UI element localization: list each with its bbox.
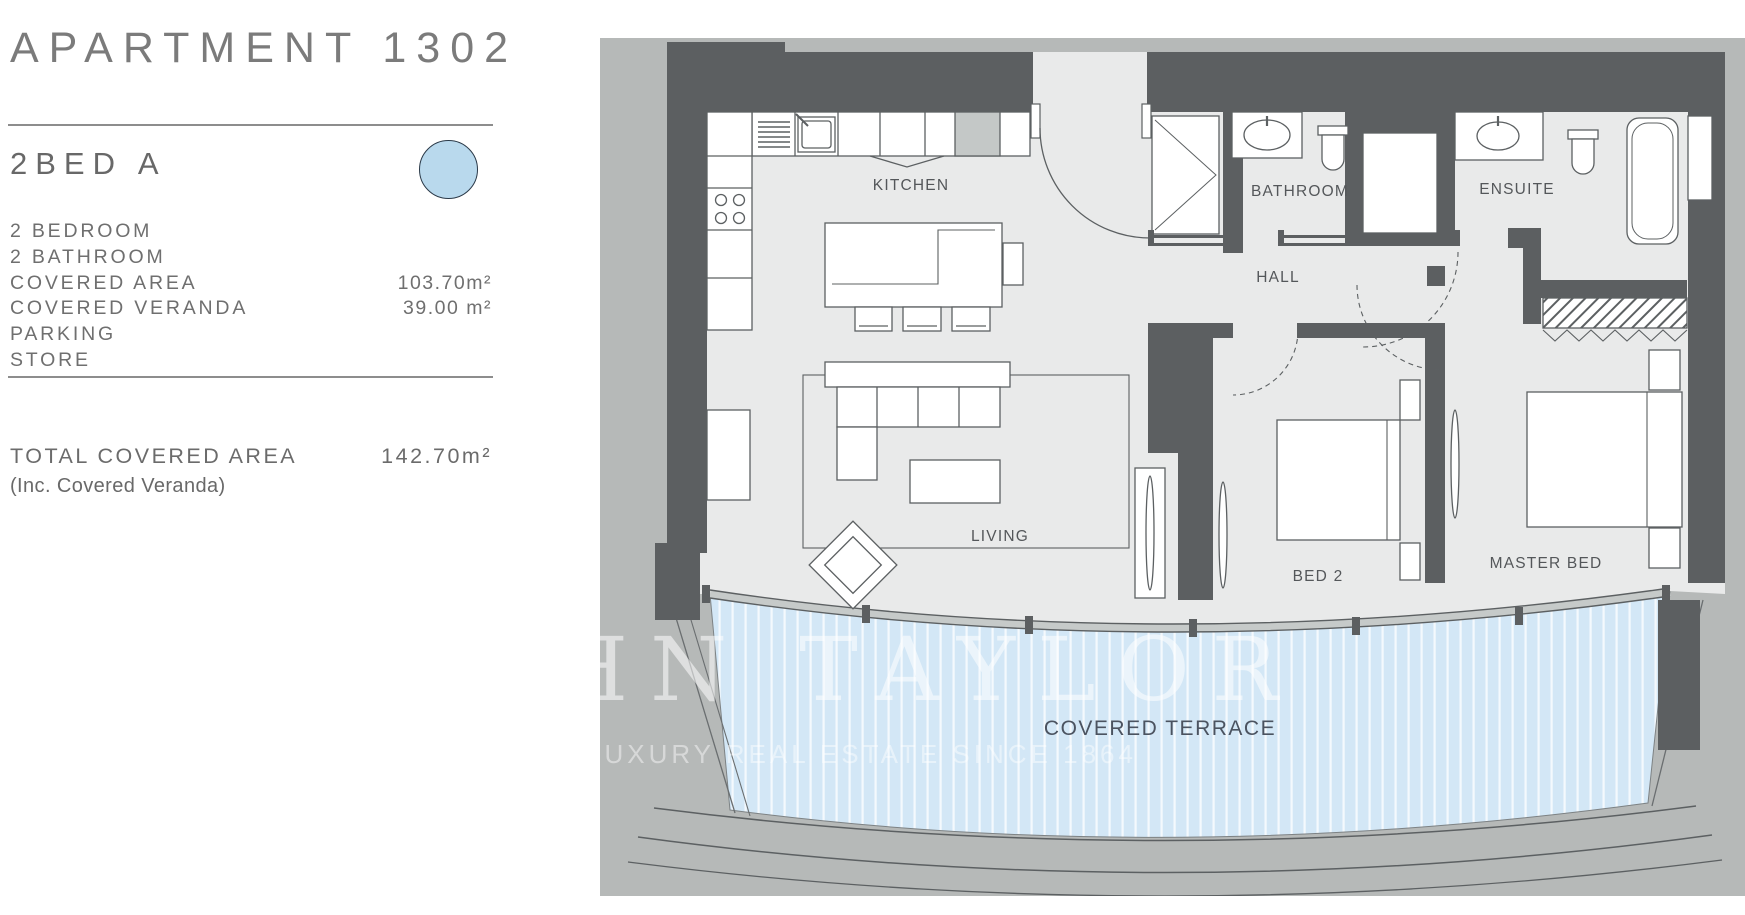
toilet-bowl [1572, 139, 1594, 174]
wall-top-right [1147, 52, 1725, 112]
toilet-tank [1318, 126, 1348, 135]
spec-label: COVERED VERANDA [10, 297, 248, 320]
unit-legend-dot [419, 140, 478, 199]
info-panel: APARTMENT 1302 2BED A 2 BEDROOM 2 BATHRO… [0, 0, 570, 915]
nightstand [1649, 528, 1680, 568]
door-jamb [1031, 104, 1040, 138]
floorplan-drawing: KITCHEN BATHROOM ENSUITE HALL LIVING BED… [570, 38, 1745, 896]
spec-row: STORE [10, 349, 492, 375]
spec-label: 2 BEDROOM [10, 220, 152, 243]
nightstand [1649, 350, 1680, 390]
divider-bottom [8, 376, 493, 378]
tv-cabinet [707, 410, 750, 500]
spec-row: PARKING [10, 323, 492, 349]
wardrobe-hatch [1543, 298, 1687, 328]
window [1688, 116, 1712, 200]
wall [667, 42, 785, 52]
kitchen-appliance [955, 112, 1000, 156]
spec-row: 2 BATHROOM [10, 246, 492, 272]
island-stools [855, 307, 990, 331]
wall-left [667, 112, 707, 553]
spec-value: 103.70m² [398, 272, 492, 295]
spec-row: COVERED VERANDA 39.00 m² [10, 297, 492, 323]
spec-label: PARKING [10, 323, 116, 346]
label-bed2: BED 2 [1293, 568, 1344, 585]
label-living: LIVING [971, 528, 1029, 545]
wall [1523, 228, 1541, 324]
wall-left-stub [655, 543, 700, 620]
wall [1213, 323, 1233, 338]
spec-value: 39.00 m² [403, 297, 492, 320]
spec-label: COVERED AREA [10, 272, 197, 295]
spec-row: 2 BEDROOM [10, 220, 492, 246]
wall-bed2-master [1425, 338, 1445, 583]
nightstand [1400, 543, 1420, 580]
wall-wardrobe-top [1535, 280, 1687, 298]
shower-tray [1363, 133, 1437, 233]
total-area-value: 142.70m² [381, 444, 492, 469]
page-title: APARTMENT 1302 [10, 24, 518, 73]
spec-label: 2 BATHROOM [10, 246, 165, 269]
wall-top-left [667, 52, 1033, 112]
label-kitchen: KITCHEN [873, 177, 949, 194]
bathtub [1627, 118, 1678, 244]
wall-hall-closet [1148, 323, 1213, 453]
sofa-chaise [837, 427, 877, 480]
coffee-table [910, 460, 1000, 503]
ensuite-sink [1477, 122, 1519, 150]
label-master-bed: MASTER BED [1490, 555, 1603, 572]
total-area-label: TOTAL COVERED AREA [10, 444, 297, 469]
door-jamb [1142, 104, 1151, 138]
sliding-glass-panel [1146, 476, 1154, 590]
sliding-glass-panel [1451, 410, 1459, 518]
sofa-back [825, 362, 1010, 387]
wall-terrace-right [1658, 600, 1700, 750]
kitchen-island [825, 223, 1002, 307]
spec-list: 2 BEDROOM 2 BATHROOM COVERED AREA 103.70… [10, 220, 492, 375]
sliding-glass-panel [1219, 482, 1227, 588]
spec-label: STORE [10, 349, 91, 372]
toilet-tank [1568, 130, 1598, 139]
label-ensuite: ENSUITE [1479, 181, 1555, 198]
wall-living-bed2 [1178, 447, 1213, 600]
floorplan-page: APARTMENT 1302 2BED A 2 BEDROOM 2 BATHRO… [0, 0, 1745, 915]
watermark-brand: JOHN TAYLOR [570, 618, 1300, 721]
nightstand [1400, 380, 1420, 420]
divider-top [8, 124, 493, 126]
total-area-note: (Inc. Covered Veranda) [10, 475, 226, 498]
total-area-row: TOTAL COVERED AREA 142.70m² [10, 444, 492, 469]
watermark-tagline: LUXURY REAL ESTATE SINCE 1864 [586, 739, 1137, 769]
toilet-bowl [1322, 135, 1344, 170]
bed2-bed [1277, 420, 1400, 540]
master-bed [1527, 392, 1682, 527]
kitchen-tall-units [707, 112, 752, 330]
label-hall: HALL [1256, 269, 1300, 286]
floorplan-svg: KITCHEN BATHROOM ENSUITE HALL LIVING BED… [570, 38, 1745, 896]
wall-stub [1427, 266, 1445, 286]
entrance-closet [1152, 116, 1219, 234]
island-end-chair [1003, 243, 1023, 285]
spec-row: COVERED AREA 103.70m² [10, 272, 492, 298]
unit-type-label: 2BED A [10, 146, 167, 182]
label-bathroom: BATHROOM [1251, 183, 1349, 200]
